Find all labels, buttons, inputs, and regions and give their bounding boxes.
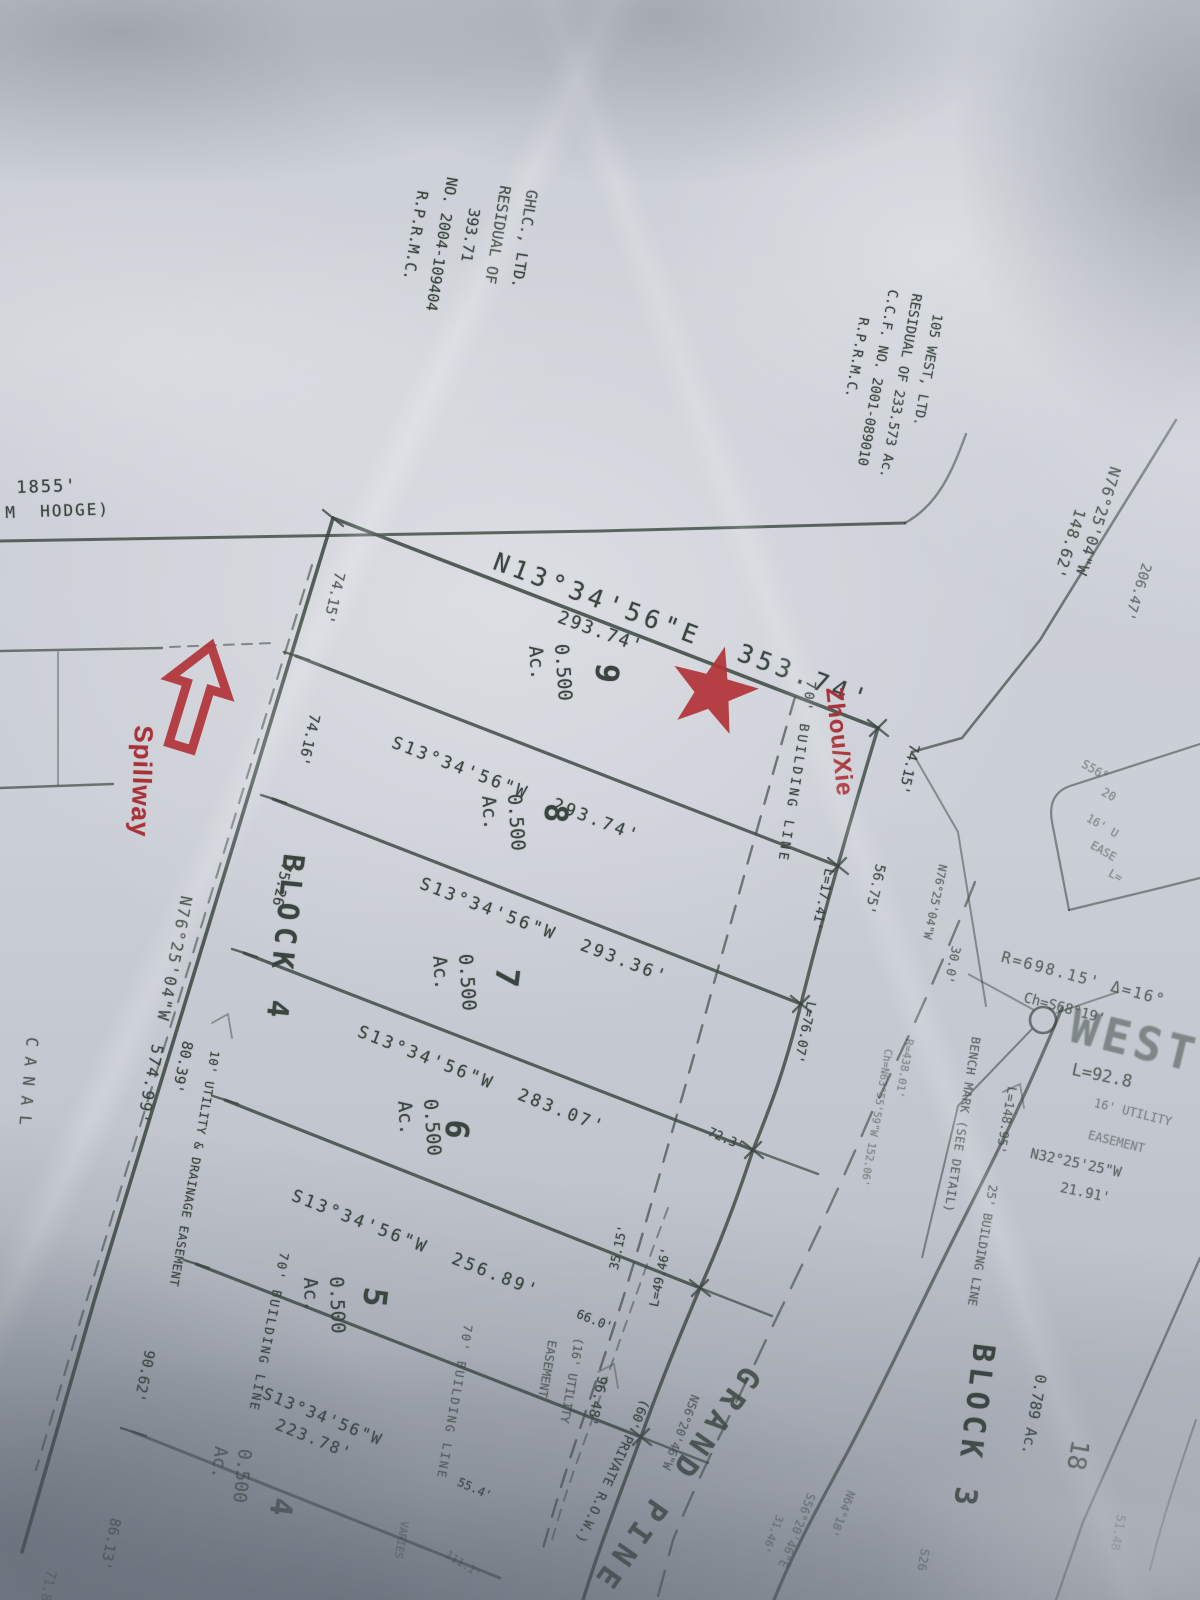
lot9-area: 0.500 Ac.	[522, 643, 577, 704]
plat-map-photo: 1855' M HODGE) GHLC., LTD. RESIDUAL OF 3…	[0, 0, 1200, 1600]
boundary-lines	[0, 434, 966, 1578]
lot7-area: 0.500 Ac.	[426, 953, 481, 1014]
hodge-name-label: M HODGE)	[5, 499, 110, 523]
hodge-dimension-label: 1855'	[16, 476, 78, 499]
lot5-area: 0.500 Ac.	[297, 1276, 350, 1335]
plat-line-drawing	[0, 0, 1200, 1600]
spillway-arrow-icon	[152, 637, 240, 755]
lot18-number: 18	[1060, 1438, 1096, 1473]
ghlc-ownership-note: GHLC., LTD. RESIDUAL OF 393.71 NO. 2004-…	[390, 171, 545, 326]
spillway-annotation: Spillway	[124, 725, 160, 838]
lot6-area: 0.500 Ac.	[391, 1098, 446, 1159]
lot4-area: 0.500 Ac.	[202, 1445, 256, 1504]
lot8-area: 0.500 Ac.	[475, 793, 530, 854]
